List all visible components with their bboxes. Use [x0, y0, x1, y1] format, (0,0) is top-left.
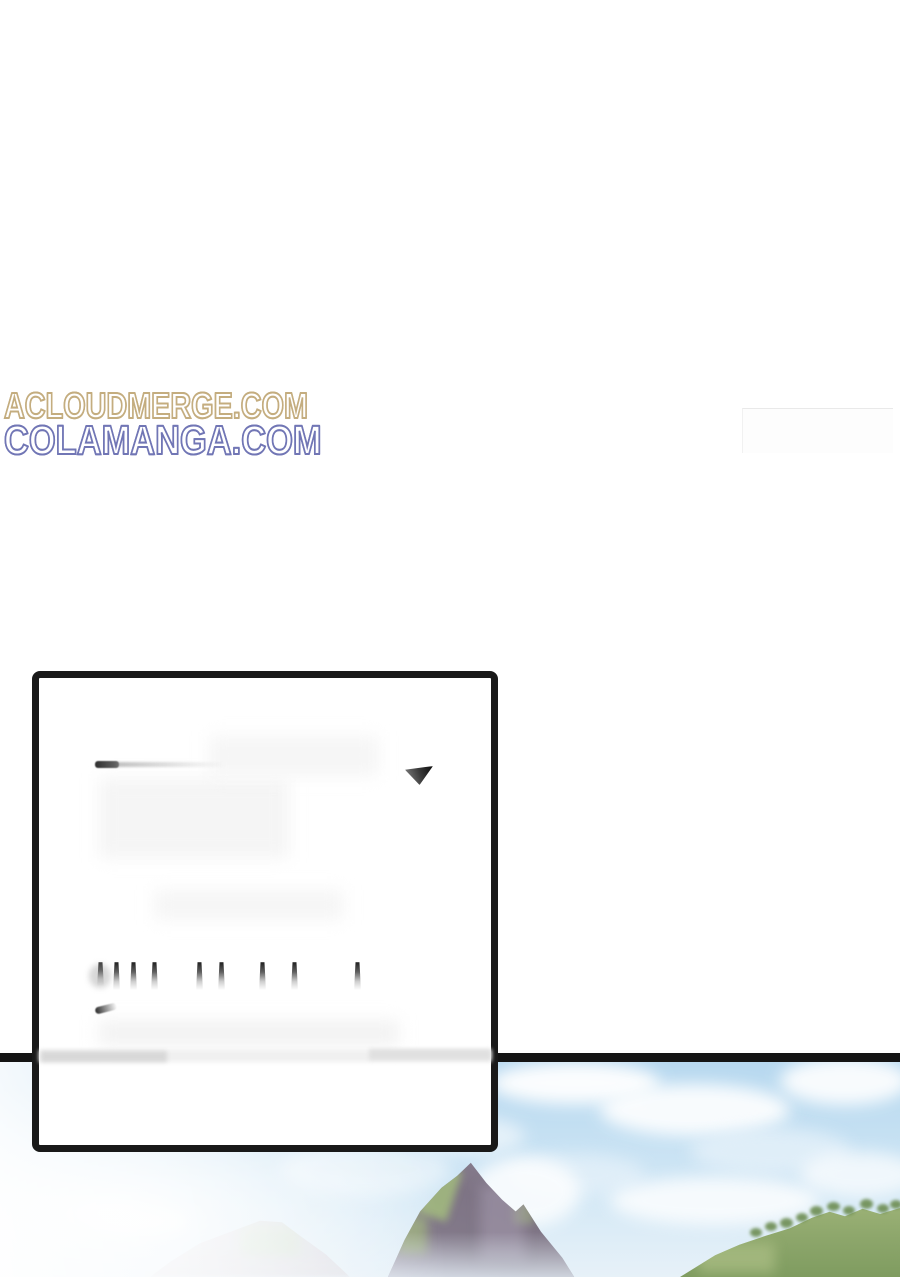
erased-text-tick — [130, 962, 137, 990]
panel-line-ghost-right — [369, 1049, 491, 1060]
erased-text-tick — [196, 962, 203, 990]
erased-text-tick — [113, 962, 120, 990]
faint-smudge-rect — [742, 408, 893, 453]
ghost-smudge — [99, 778, 289, 858]
comic-page: ACLOUDMERGE.COM COLAMANGA.COM — [0, 0, 900, 1277]
erased-text-tick — [218, 962, 225, 990]
speech-panel — [32, 671, 498, 1152]
ghost-smudge — [209, 736, 379, 776]
erased-triangle-mark — [405, 766, 433, 785]
erased-text-tick — [354, 962, 361, 990]
erased-text-tick — [291, 962, 298, 990]
panel-line-ghost-left — [41, 1051, 167, 1062]
ghost-smudge — [154, 890, 344, 920]
watermark-colamanga: COLAMANGA.COM — [4, 420, 322, 461]
erased-hook-mark — [94, 1002, 117, 1014]
erased-text-tick — [151, 962, 158, 990]
erased-dash-mark — [95, 761, 119, 768]
erased-text-tick — [259, 962, 266, 990]
ghost-smudge — [99, 1020, 399, 1046]
erased-dash-tail — [117, 762, 225, 767]
